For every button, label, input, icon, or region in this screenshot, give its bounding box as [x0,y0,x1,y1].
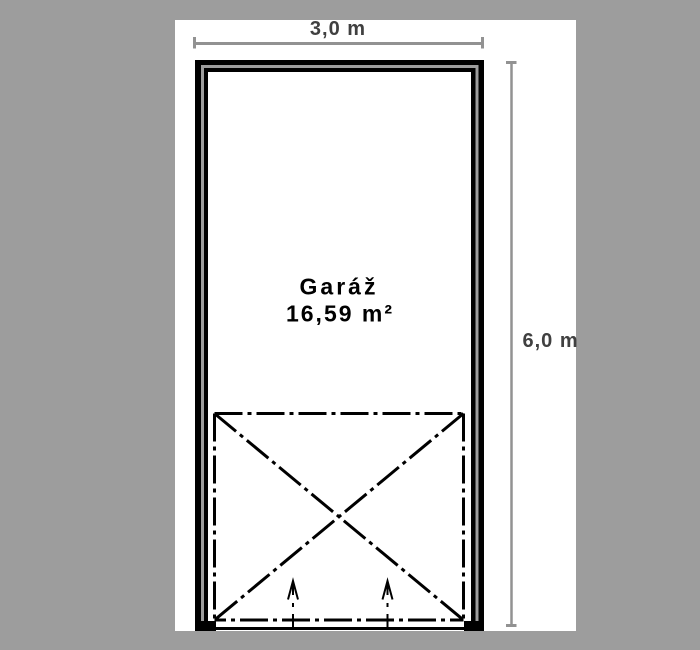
svg-text:6,0 m: 6,0 m [523,330,579,352]
svg-text:3,0 m: 3,0 m [310,18,366,40]
svg-text:16,59 m²: 16,59 m² [286,301,394,327]
svg-text:Garáž: Garáž [300,274,379,300]
